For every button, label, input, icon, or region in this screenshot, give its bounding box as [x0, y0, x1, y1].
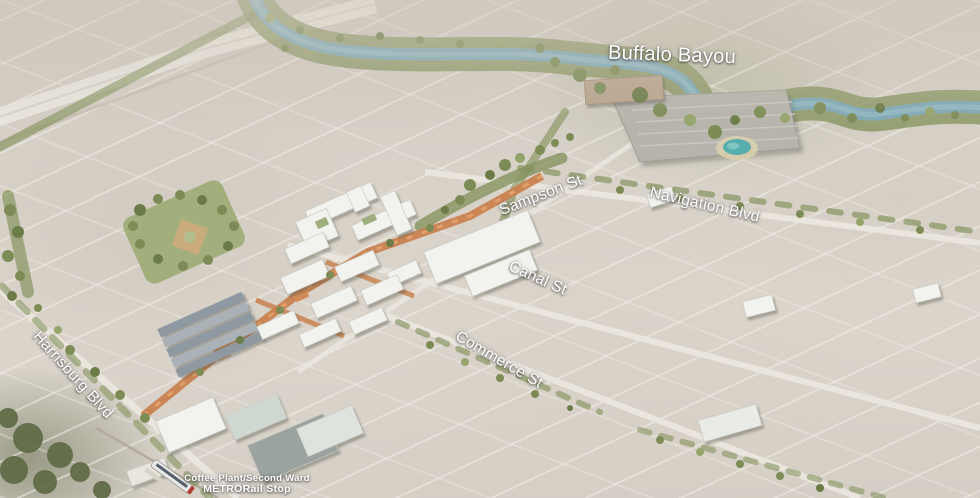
label-buffalo-bayou: Buffalo Bayou: [608, 42, 737, 69]
label-metrorail-stop-line2: METRORail Stop: [147, 484, 347, 494]
dense-trees-bottom-left: [0, 408, 111, 498]
aerial-masterplan-rendering: Buffalo Bayou Navigation Blvd Sampson St…: [0, 0, 980, 498]
label-metrorail-stop: Coffee Plant/Second Ward METRORail Stop: [147, 474, 347, 494]
pool-complex: [716, 136, 758, 160]
map-artwork: [0, 0, 980, 498]
freeway-band: [0, 4, 375, 146]
